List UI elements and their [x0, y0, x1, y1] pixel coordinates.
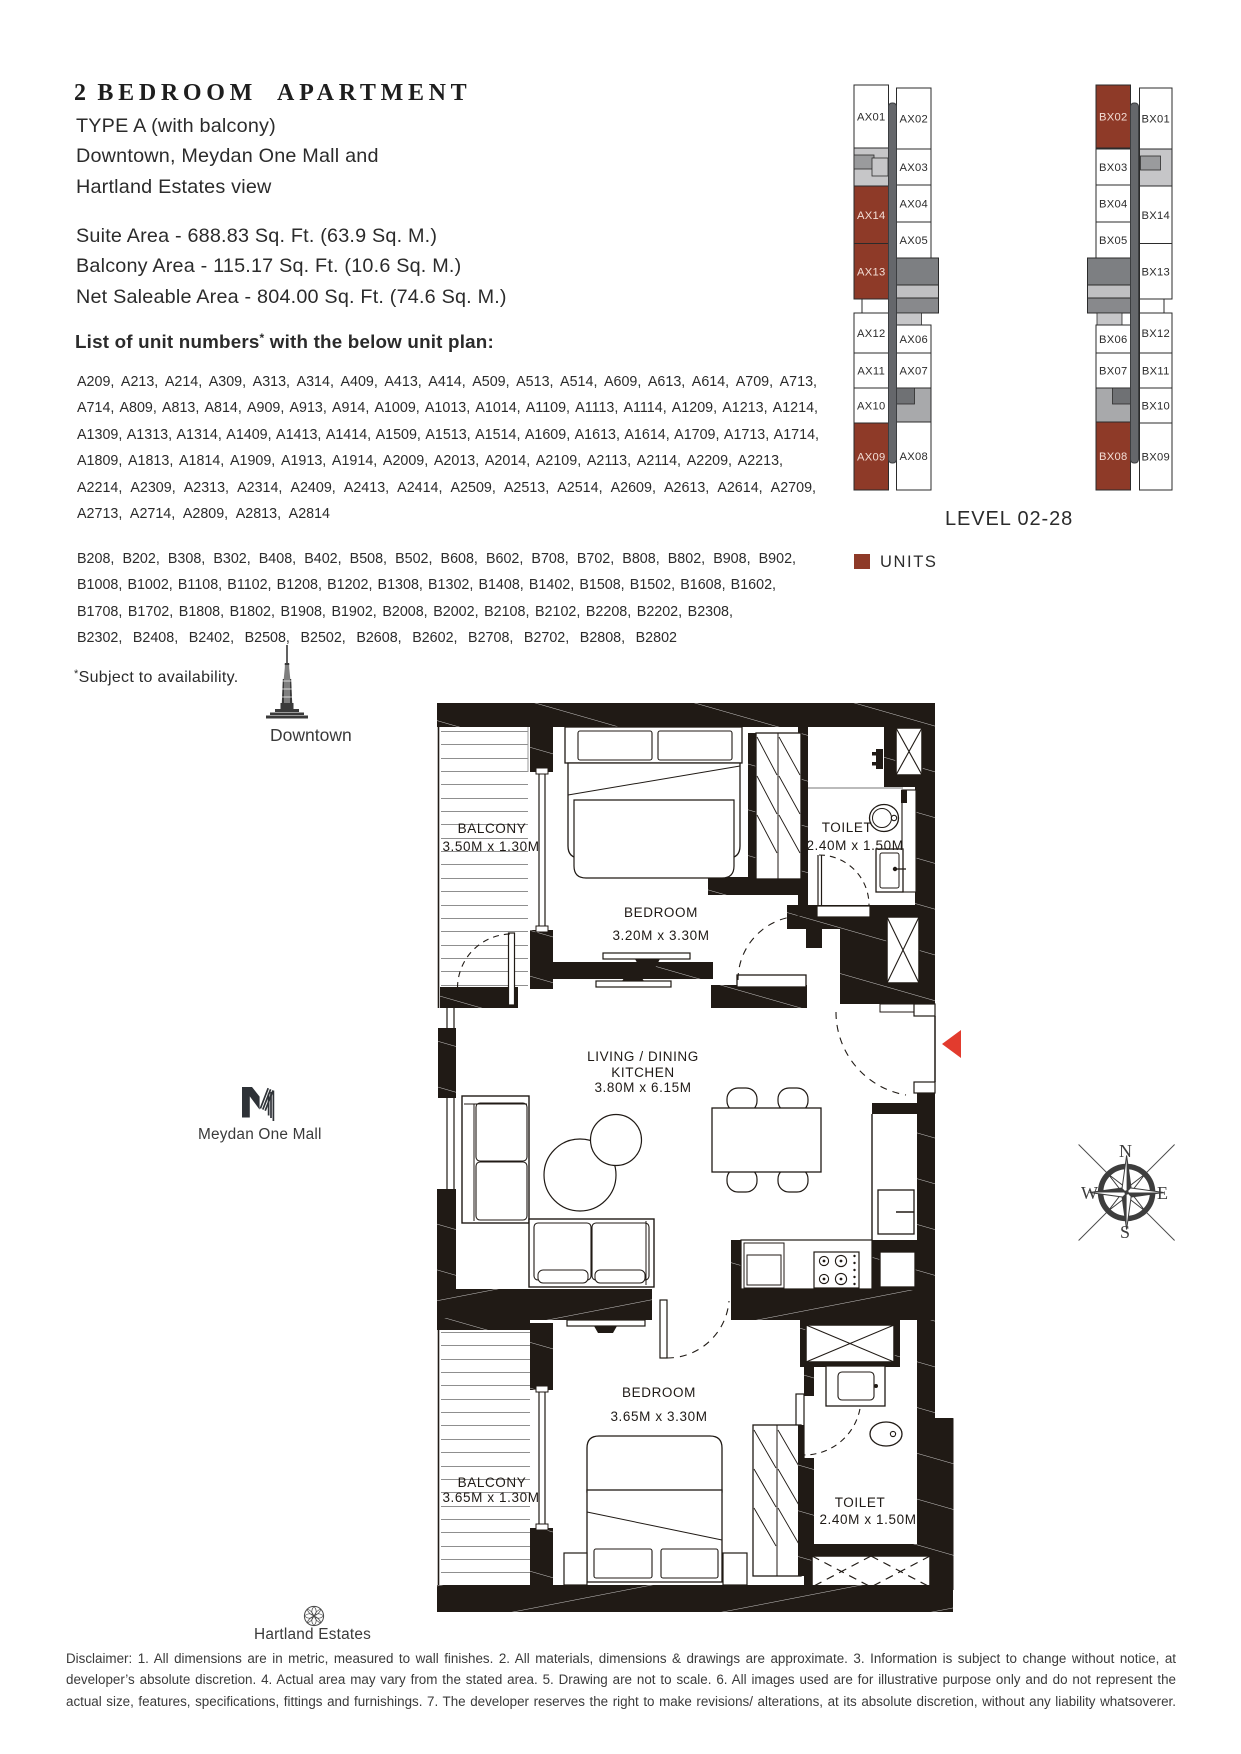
svg-text:BX10: BX10 — [1141, 401, 1170, 413]
svg-text:BX03: BX03 — [1099, 162, 1128, 174]
svg-text:AX08: AX08 — [899, 451, 928, 463]
svg-text:AX11: AX11 — [857, 366, 885, 378]
svg-text:TOILET: TOILET — [835, 1495, 886, 1510]
svg-text:3.20M x 3.30M: 3.20M x 3.30M — [612, 928, 709, 943]
svg-text:BALCONY: BALCONY — [458, 821, 527, 836]
svg-text:AX07: AX07 — [899, 366, 928, 378]
svg-text:3.65M x 3.30M: 3.65M x 3.30M — [610, 1409, 707, 1424]
svg-text:BX09: BX09 — [1141, 452, 1170, 464]
svg-text:AX01: AX01 — [857, 112, 886, 124]
svg-text:AX10: AX10 — [857, 401, 886, 413]
svg-text:2.40M x 1.50M: 2.40M x 1.50M — [806, 838, 903, 853]
svg-text:AX12: AX12 — [857, 328, 886, 340]
svg-text:TOILET: TOILET — [822, 820, 873, 835]
svg-text:KITCHEN: KITCHEN — [611, 1065, 674, 1080]
svg-text:BX06: BX06 — [1099, 334, 1128, 346]
svg-text:BX07: BX07 — [1099, 366, 1128, 378]
svg-text:3.65M x 1.30M: 3.65M x 1.30M — [442, 1490, 539, 1505]
svg-text:BX01: BX01 — [1141, 114, 1170, 126]
svg-text:3.80M x 6.15M: 3.80M x 6.15M — [594, 1080, 691, 1095]
svg-text:AX03: AX03 — [899, 162, 928, 174]
svg-text:AX04: AX04 — [899, 199, 928, 211]
svg-text:AX02: AX02 — [899, 114, 928, 126]
svg-text:BX02: BX02 — [1099, 112, 1128, 124]
svg-text:BALCONY: BALCONY — [458, 1475, 527, 1490]
svg-text:AX14: AX14 — [857, 210, 886, 222]
svg-text:BX14: BX14 — [1141, 210, 1170, 222]
svg-text:LIVING / DINING: LIVING / DINING — [587, 1049, 699, 1064]
svg-text:BX04: BX04 — [1099, 199, 1128, 211]
svg-text:AX13: AX13 — [857, 266, 886, 278]
svg-text:BX12: BX12 — [1141, 328, 1170, 340]
svg-text:AX05: AX05 — [899, 235, 928, 247]
svg-text:AX06: AX06 — [899, 334, 928, 346]
svg-text:AX09: AX09 — [857, 452, 886, 464]
svg-text:BX05: BX05 — [1099, 235, 1128, 247]
svg-text:3.50M x 1.30M: 3.50M x 1.30M — [442, 839, 539, 854]
svg-text:2.40M x 1.50M: 2.40M x 1.50M — [819, 1512, 916, 1527]
svg-text:BEDROOM: BEDROOM — [622, 1385, 696, 1400]
svg-text:BX13: BX13 — [1141, 266, 1170, 278]
svg-text:BEDROOM: BEDROOM — [624, 905, 698, 920]
svg-text:BX11: BX11 — [1142, 366, 1170, 378]
svg-text:BX08: BX08 — [1099, 451, 1128, 463]
